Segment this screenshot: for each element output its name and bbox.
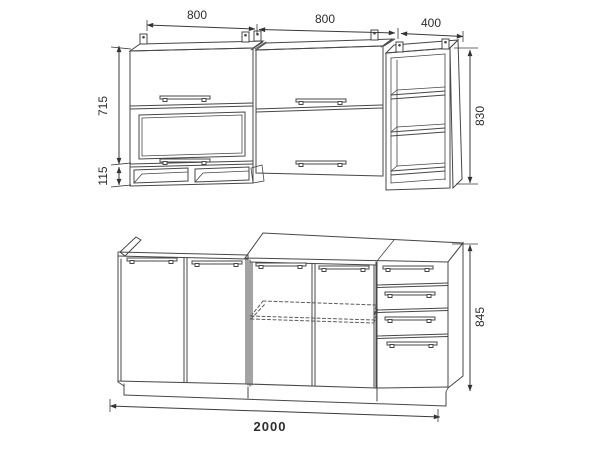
door-handle [319,266,369,272]
glass-pane [142,115,242,156]
plinth [118,382,448,406]
upper-cabinet-left [130,41,264,186]
mounting-bracket-icon [140,34,147,44]
cabinet-top-face [256,39,393,50]
mounting-bracket-icon [396,42,403,52]
base-cabinet-row [118,233,463,406]
shelf-side-panel [450,40,462,188]
dim-label-115: 115 [96,166,110,185]
base-cabinet-middle [248,260,378,388]
door-handle [192,261,242,267]
dim-upper-shelf-height: 115 [96,166,119,185]
drawer-unit [377,243,463,389]
door-handle [296,161,346,167]
dim-upper-width-3: 400 [401,16,463,42]
kitchen-technical-drawing: 800 800 400 715 115 830 [0,0,600,449]
dim-upper-width-1: 800 [147,8,257,35]
mounting-bracket-icon [442,39,449,49]
drawer-handle [385,292,435,298]
dim-label-800-left: 800 [187,8,207,22]
dim-label-800-right: 800 [315,12,335,26]
back-panel-edge [120,237,141,256]
mounting-bracket-icon [371,30,378,40]
mounting-bracket-icon [254,31,261,41]
door-handle [127,258,177,264]
dim-label-715: 715 [96,96,110,116]
dim-upper-door-height: 715 [96,46,131,187]
upper-cabinet-row [130,30,462,190]
drawer-handle [383,266,433,272]
drawer-unit-side-panel [448,243,463,388]
dim-label-2000: 2000 [254,419,287,434]
door-handle [160,96,210,102]
drawer-handle [385,317,435,323]
open-niche [134,165,264,183]
shelves [391,87,445,183]
dim-label-845: 845 [473,307,487,327]
glass-door-frame [139,112,245,159]
drawer-handle [387,342,437,348]
door-handle [296,99,346,105]
dimension-annotations: 800 800 400 715 115 830 [96,8,487,434]
upper-cabinet-middle [251,39,393,176]
door-handle [160,159,210,165]
countertop [245,233,463,262]
dim-label-830: 830 [473,106,487,126]
base-cabinet-left [118,237,248,385]
upper-open-shelf-unit [381,39,462,190]
mounting-bracket-icon [242,32,249,42]
drawing-canvas: 800 800 400 715 115 830 [0,0,600,449]
door-handle [256,263,306,269]
dim-label-400: 400 [421,16,441,30]
